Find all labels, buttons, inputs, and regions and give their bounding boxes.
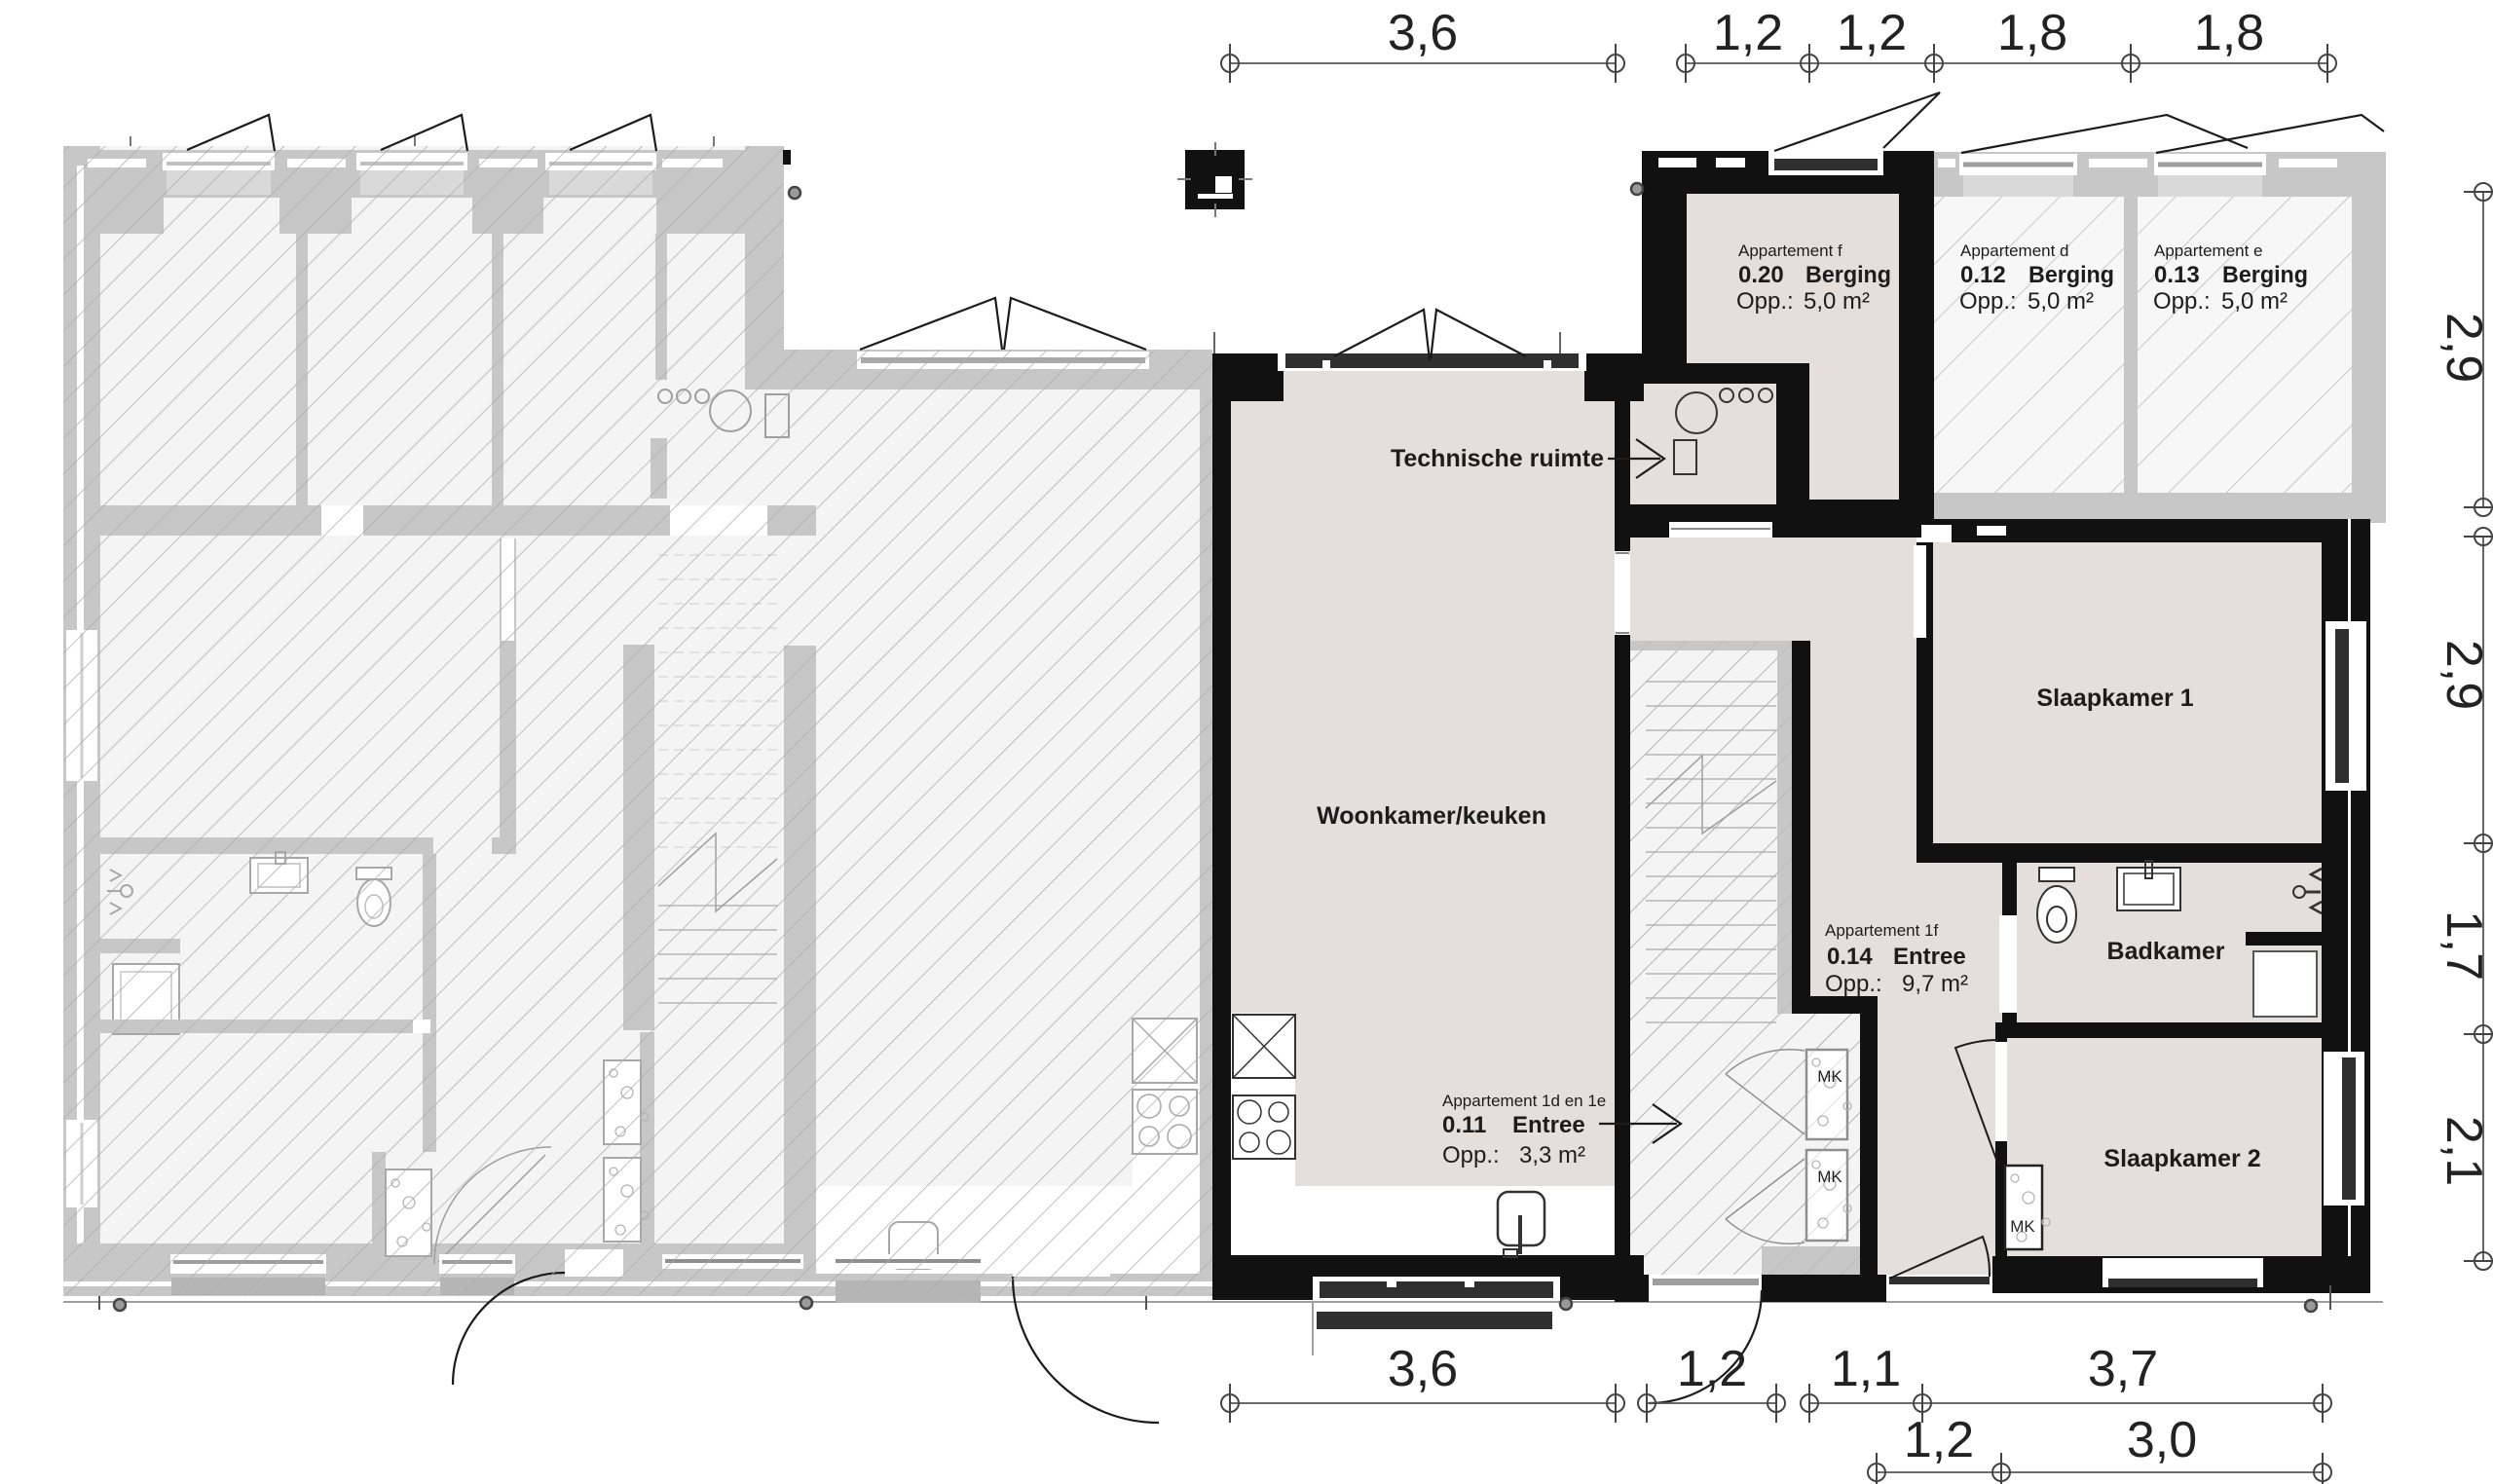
svg-text:Berging: Berging: [1805, 262, 1891, 288]
svg-text:5,0 m²: 5,0 m²: [1804, 288, 1870, 315]
svg-text:2,9: 2,9: [2436, 313, 2492, 383]
svg-text:5,0 m²: 5,0 m²: [2028, 288, 2094, 315]
svg-text:Opp.:: Opp.:: [1825, 971, 1882, 997]
svg-text:2,1: 2,1: [2436, 1116, 2492, 1186]
svg-text:Berging: Berging: [2028, 262, 2114, 288]
svg-text:Technische ruimte: Technische ruimte: [1391, 445, 1604, 472]
svg-text:0.11: 0.11: [1442, 1112, 1486, 1138]
svg-text:Appartement 1f: Appartement 1f: [1825, 921, 1939, 940]
svg-text:Opp.:: Opp.:: [2153, 288, 2211, 315]
svg-text:1,8: 1,8: [1997, 5, 2067, 61]
svg-text:Berging: Berging: [2222, 262, 2308, 288]
svg-text:1,2: 1,2: [1837, 5, 1907, 61]
svg-text:2,9: 2,9: [2436, 640, 2492, 710]
svg-text:1,1: 1,1: [1831, 1341, 1901, 1397]
svg-text:3,0: 3,0: [2127, 1412, 2197, 1468]
svg-text:Opp.:: Opp.:: [1442, 1142, 1500, 1169]
svg-text:MK: MK: [1817, 1067, 1842, 1086]
svg-text:Opp.:: Opp.:: [1736, 288, 1794, 315]
svg-text:Appartement d: Appartement d: [1960, 241, 2069, 260]
svg-text:Opp.:: Opp.:: [1959, 288, 2017, 315]
svg-text:0.14: 0.14: [1827, 944, 1873, 970]
svg-text:MK: MK: [1817, 1168, 1842, 1186]
svg-text:1,2: 1,2: [1904, 1412, 1974, 1468]
svg-text:3,7: 3,7: [2088, 1341, 2158, 1397]
svg-text:3,6: 3,6: [1388, 1341, 1458, 1397]
svg-text:0.12: 0.12: [1960, 262, 2006, 288]
svg-text:1,8: 1,8: [2194, 5, 2264, 61]
svg-text:Entree: Entree: [1893, 944, 1966, 970]
svg-text:1,7: 1,7: [2436, 910, 2492, 981]
svg-text:5,0 m²: 5,0 m²: [2221, 288, 2288, 315]
svg-text:1,2: 1,2: [1713, 5, 1783, 61]
svg-text:3,3 m²: 3,3 m²: [1519, 1142, 1585, 1169]
svg-text:1,2: 1,2: [1677, 1341, 1747, 1397]
svg-text:3,6: 3,6: [1388, 5, 1458, 61]
svg-text:0.13: 0.13: [2154, 262, 2200, 288]
svg-text:0.20: 0.20: [1738, 262, 1784, 288]
svg-text:Appartement 1d en 1e: Appartement 1d en 1e: [1442, 1092, 1606, 1110]
svg-text:Entree: Entree: [1512, 1112, 1585, 1138]
svg-text:MK: MK: [2010, 1217, 2035, 1236]
svg-text:Badkamer: Badkamer: [2107, 938, 2225, 965]
svg-text:9,7 m²: 9,7 m²: [1902, 971, 1968, 997]
svg-text:Slaapkamer 2: Slaapkamer 2: [2103, 1145, 2260, 1172]
svg-text:Appartement f: Appartement f: [1738, 241, 1842, 260]
svg-text:Slaapkamer 1: Slaapkamer 1: [2036, 685, 2193, 712]
svg-text:Appartement e: Appartement e: [2154, 241, 2263, 260]
svg-text:Woonkamer/keuken: Woonkamer/keuken: [1317, 802, 1546, 830]
